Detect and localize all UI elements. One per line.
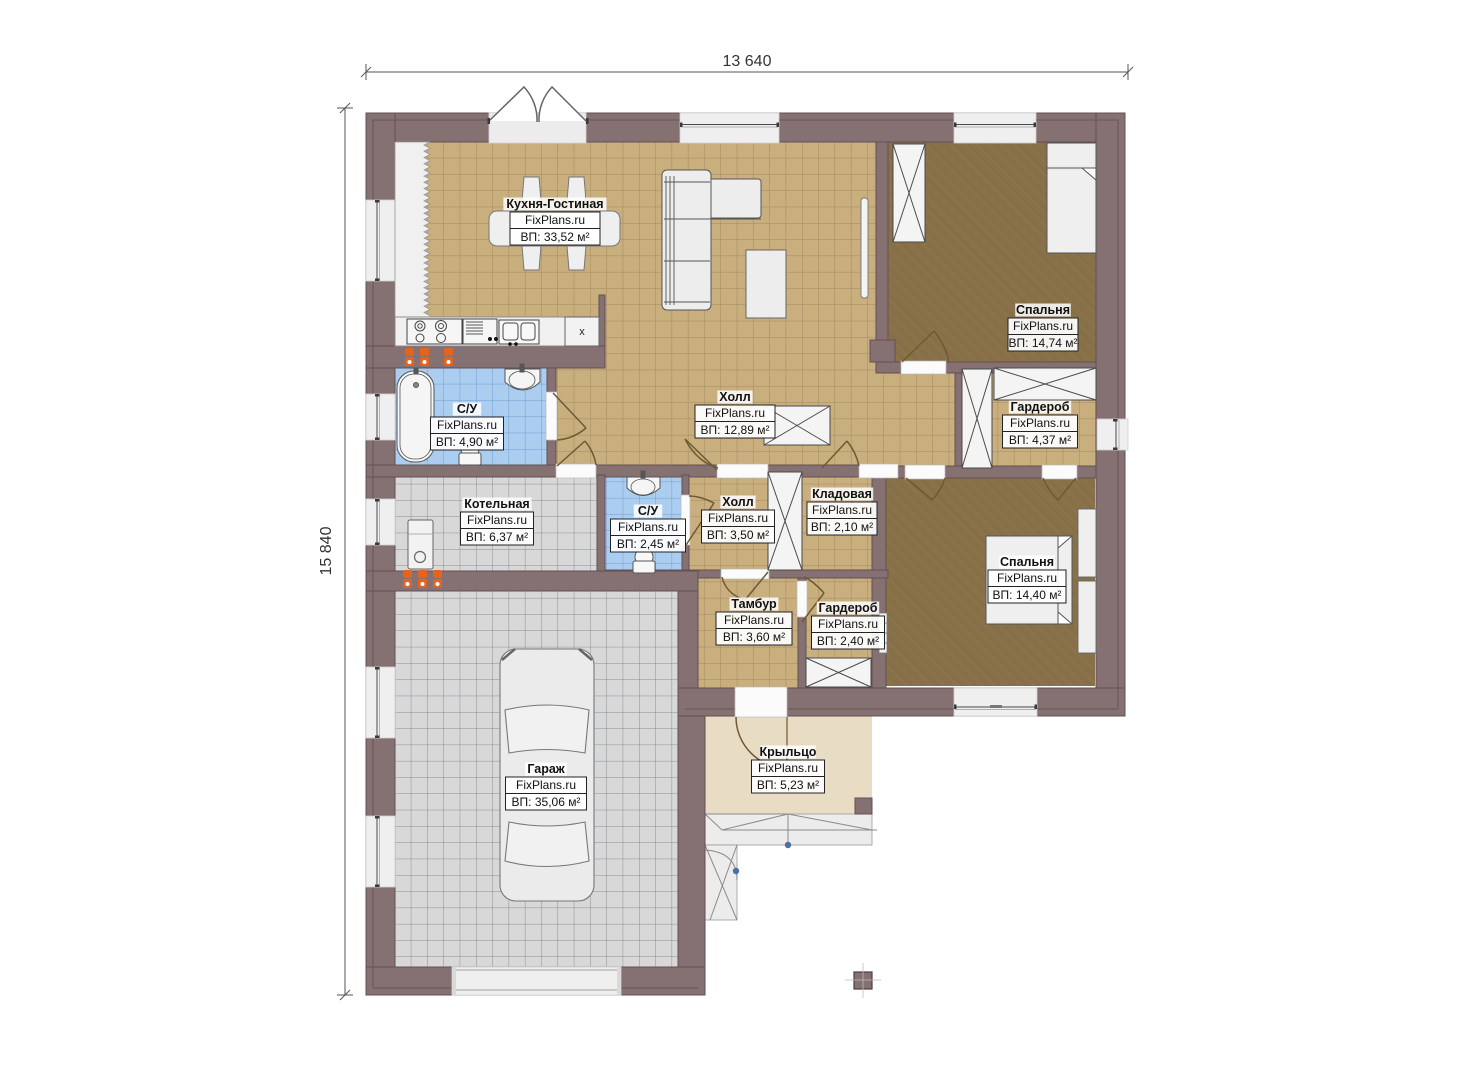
- svg-text:ВП: 14,40 м²: ВП: 14,40 м²: [993, 588, 1062, 602]
- svg-text:FixPlans.ru: FixPlans.ru: [758, 761, 818, 775]
- svg-text:FixPlans.ru: FixPlans.ru: [812, 503, 872, 517]
- svg-text:ВП: 4,37 м²: ВП: 4,37 м²: [1009, 433, 1071, 447]
- svg-text:С/У: С/У: [638, 504, 659, 518]
- svg-text:FixPlans.ru: FixPlans.ru: [997, 571, 1057, 585]
- svg-text:Тамбур: Тамбур: [731, 597, 777, 611]
- svg-text:ВП: 3,50 м²: ВП: 3,50 м²: [707, 528, 769, 542]
- svg-text:FixPlans.ru: FixPlans.ru: [1010, 416, 1070, 430]
- svg-text:ВП: 2,40 м²: ВП: 2,40 м²: [817, 634, 879, 648]
- svg-text:FixPlans.ru: FixPlans.ru: [1013, 319, 1073, 333]
- svg-text:FixPlans.ru: FixPlans.ru: [618, 520, 678, 534]
- svg-text:Гардероб: Гардероб: [1010, 400, 1069, 414]
- svg-text:ВП: 5,23 м²: ВП: 5,23 м²: [757, 778, 819, 792]
- svg-text:ВП: 2,45 м²: ВП: 2,45 м²: [617, 537, 679, 551]
- svg-text:Гардероб: Гардероб: [818, 601, 877, 615]
- svg-text:FixPlans.ru: FixPlans.ru: [705, 406, 765, 420]
- svg-text:FixPlans.ru: FixPlans.ru: [525, 213, 585, 227]
- svg-text:Крыльцо: Крыльцо: [760, 745, 817, 759]
- svg-text:Кладовая: Кладовая: [812, 487, 872, 501]
- svg-text:Холл: Холл: [722, 495, 753, 509]
- svg-text:Кухня-Гостиная: Кухня-Гостиная: [506, 197, 603, 211]
- svg-text:ВП: 33,52 м²: ВП: 33,52 м²: [521, 230, 590, 244]
- svg-text:FixPlans.ru: FixPlans.ru: [708, 511, 768, 525]
- svg-text:Спальня: Спальня: [1016, 303, 1070, 317]
- svg-text:FixPlans.ru: FixPlans.ru: [724, 613, 784, 627]
- svg-text:Гараж: Гараж: [527, 762, 564, 776]
- svg-text:ВП: 14,74 м²: ВП: 14,74 м²: [1009, 336, 1078, 350]
- svg-text:FixPlans.ru: FixPlans.ru: [818, 617, 878, 631]
- svg-text:13 640: 13 640: [723, 53, 772, 70]
- svg-text:FixPlans.ru: FixPlans.ru: [467, 513, 527, 527]
- svg-text:Котельная: Котельная: [464, 497, 529, 511]
- svg-text:x: x: [579, 326, 585, 338]
- svg-text:Холл: Холл: [719, 390, 750, 404]
- svg-text:ВП: 4,90 м²: ВП: 4,90 м²: [436, 435, 498, 449]
- svg-text:ВП: 2,10 м²: ВП: 2,10 м²: [811, 520, 873, 534]
- svg-text:15 840: 15 840: [318, 526, 335, 575]
- svg-text:ВП: 35,06 м²: ВП: 35,06 м²: [512, 795, 581, 809]
- svg-text:ВП: 6,37 м²: ВП: 6,37 м²: [466, 530, 528, 544]
- svg-text:С/У: С/У: [457, 402, 478, 416]
- svg-text:Спальня: Спальня: [1000, 555, 1054, 569]
- svg-text:ВП: 3,60 м²: ВП: 3,60 м²: [723, 630, 785, 644]
- svg-text:ВП: 12,89 м²: ВП: 12,89 м²: [701, 423, 770, 437]
- svg-text:FixPlans.ru: FixPlans.ru: [516, 778, 576, 792]
- svg-text:FixPlans.ru: FixPlans.ru: [437, 418, 497, 432]
